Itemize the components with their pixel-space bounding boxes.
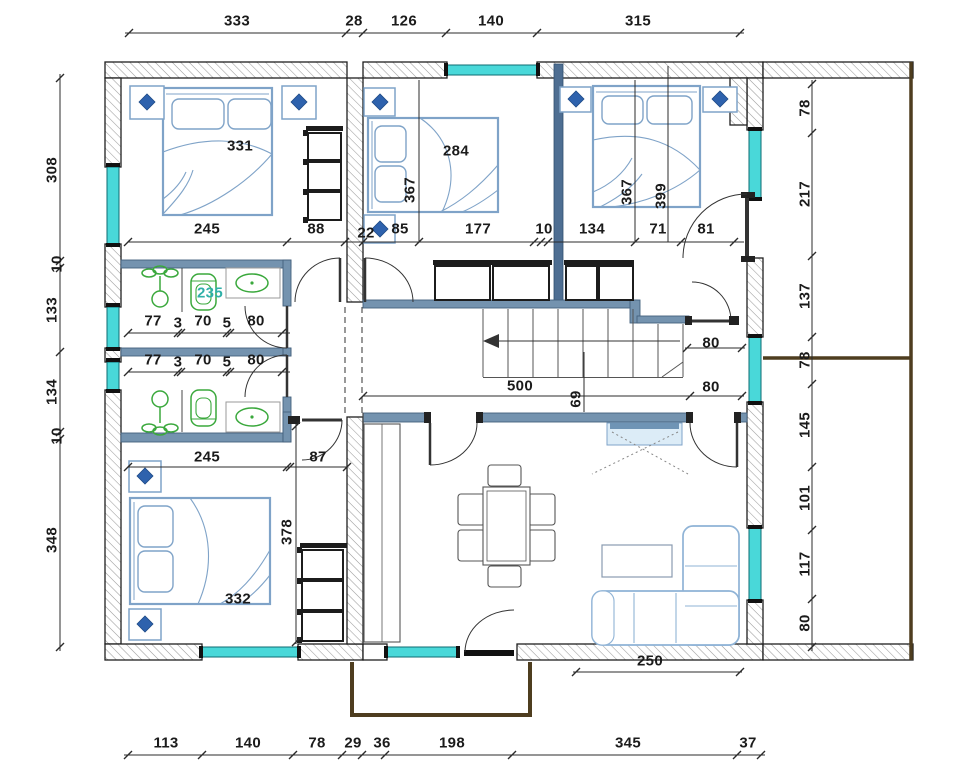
stair-direction-arrow xyxy=(483,334,499,348)
window-left-2 xyxy=(107,307,119,348)
door-bath-lower xyxy=(245,355,287,397)
dining-set xyxy=(458,465,555,587)
window-right-1 xyxy=(749,130,761,198)
floor-plan: 333 28 126 140 315 113 140 78 29 36 198 … xyxy=(0,0,960,767)
stair-wall xyxy=(363,300,637,308)
wardrobe-332 xyxy=(302,612,343,641)
bed-331 xyxy=(163,88,272,215)
wardrobe-331 xyxy=(308,192,341,220)
window-bottom-2 xyxy=(387,647,457,657)
beds xyxy=(130,86,700,604)
door-bath-upper xyxy=(245,306,287,348)
window-bottom-1 xyxy=(202,647,298,657)
tv-unit xyxy=(592,423,688,474)
window-right-2 xyxy=(749,337,761,402)
door-hall-left xyxy=(295,258,340,302)
door-living-left xyxy=(424,412,483,465)
terrace-bottom-wall xyxy=(763,644,913,660)
window-right-3 xyxy=(749,528,761,600)
bath-wall-divider xyxy=(121,348,291,356)
hall-closet xyxy=(435,266,490,300)
hall-closet xyxy=(566,266,597,300)
sofa xyxy=(592,526,739,645)
bath-wall-bottom xyxy=(121,433,291,442)
bath-wall-top xyxy=(121,260,291,268)
door-hall-right xyxy=(365,258,413,302)
coffee-table xyxy=(602,545,672,577)
door-stair-landing xyxy=(685,282,739,325)
sink-lower xyxy=(226,402,280,432)
living-wall xyxy=(363,413,430,422)
bed-332 xyxy=(130,498,270,604)
wardrobe-332 xyxy=(302,550,343,579)
toilet-lower xyxy=(191,390,216,426)
door-entrance xyxy=(464,610,514,656)
sink-upper xyxy=(226,268,280,298)
bed-top-right xyxy=(593,86,700,207)
hall-closet xyxy=(493,266,549,300)
bed-284 xyxy=(368,118,498,212)
partition-wall xyxy=(347,78,363,302)
door-living-right xyxy=(686,412,741,467)
window-top xyxy=(447,65,537,75)
window-left-1 xyxy=(107,167,119,244)
hall-closet xyxy=(599,266,633,300)
sofa-armrest xyxy=(592,591,614,645)
window-left-3 xyxy=(107,362,119,390)
wardrobe-331 xyxy=(308,133,341,160)
wardrobe-332 xyxy=(302,581,343,610)
partition-wall xyxy=(347,417,363,644)
shower-upper xyxy=(142,266,178,307)
living-wall xyxy=(477,413,690,422)
terrace-top-wall xyxy=(763,62,913,78)
floor-plan-drawing xyxy=(0,0,960,767)
toilet-upper xyxy=(191,274,216,310)
wardrobe-331 xyxy=(308,162,341,190)
shower-lower xyxy=(142,391,178,435)
porch-outline xyxy=(352,662,530,715)
